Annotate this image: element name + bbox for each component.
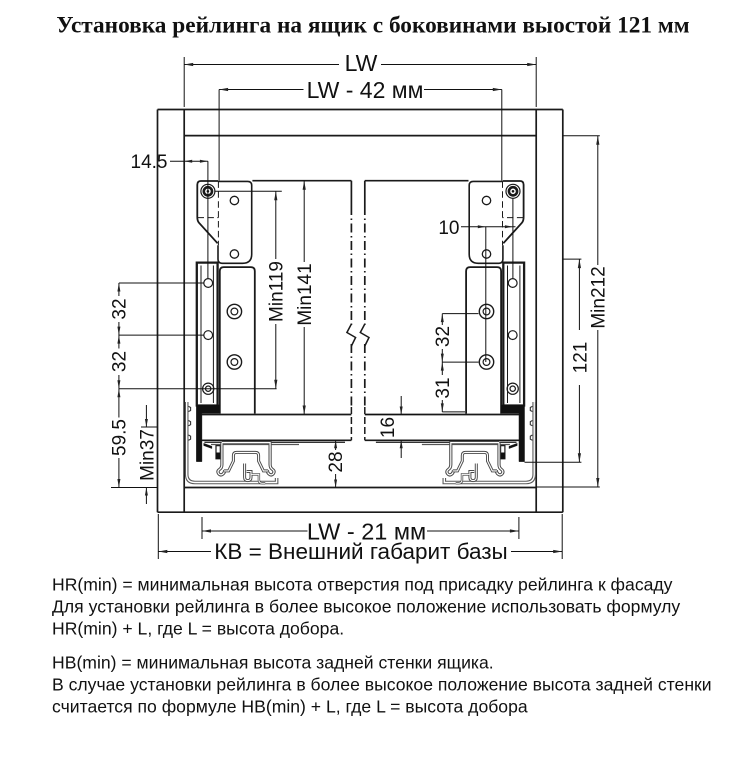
- svg-text:10: 10: [438, 218, 459, 239]
- svg-text:Min119: Min119: [267, 261, 288, 322]
- svg-text:HR(min) + L, где L = высота д: HR(min) + L, где L = высота добора.: [52, 619, 344, 639]
- svg-text:Min212: Min212: [589, 266, 610, 328]
- svg-text:Min37: Min37: [138, 429, 159, 481]
- svg-text:31: 31: [433, 377, 454, 398]
- svg-text:Для установки рейлинга в более: Для установки рейлинга в более высокое п…: [52, 597, 680, 617]
- svg-text:Установка рейлинга на ящик с б: Установка рейлинга на ящик с боковинами …: [56, 13, 689, 39]
- svg-text:59.5: 59.5: [110, 419, 131, 456]
- svg-text:LW: LW: [345, 50, 378, 76]
- svg-text:LW - 42 мм: LW - 42 мм: [307, 77, 424, 103]
- svg-text:121: 121: [571, 342, 592, 374]
- svg-text:28: 28: [326, 451, 347, 472]
- svg-text:считается по формуле HB(min) +: считается по формуле HB(min) + L, где L …: [52, 697, 528, 717]
- svg-text:Min141: Min141: [295, 263, 316, 325]
- svg-text:В случае установки рейлинга в: В случае установки рейлинга в более высо…: [52, 675, 712, 695]
- svg-text:HB(min) = минимальная высота з: HB(min) = минимальная высота задней стен…: [52, 653, 494, 673]
- svg-text:КВ = Внешний габарит базы: КВ = Внешний габарит базы: [214, 539, 507, 564]
- svg-text:32: 32: [110, 351, 131, 372]
- svg-text:16: 16: [378, 417, 399, 438]
- svg-text:32: 32: [433, 326, 454, 347]
- svg-text:14.5: 14.5: [131, 152, 168, 173]
- svg-text:32: 32: [110, 298, 131, 319]
- svg-text:HR(min) = минимальная высота о: HR(min) = минимальная высота отверстия п…: [52, 575, 673, 595]
